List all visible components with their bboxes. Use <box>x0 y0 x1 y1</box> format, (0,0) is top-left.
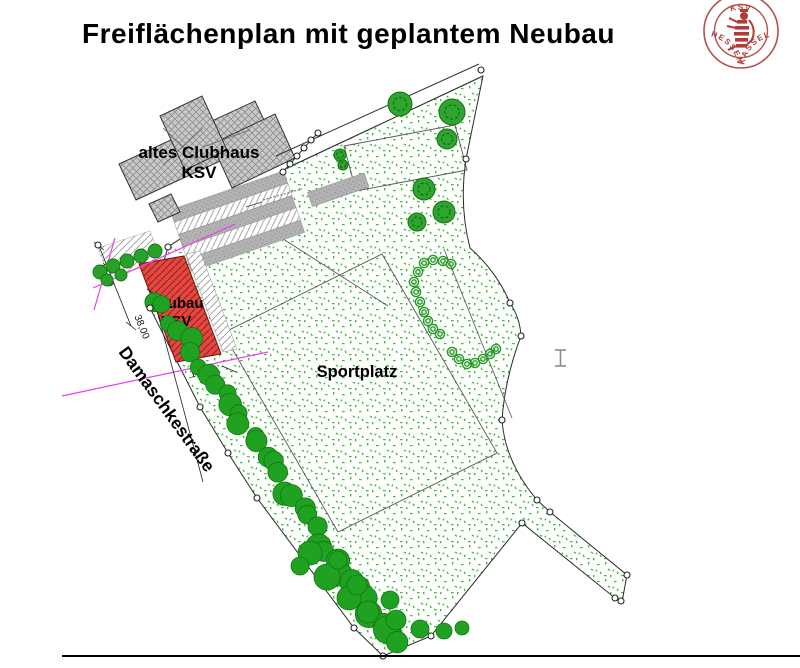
ksv-logo: KSV HESSEN KASSEL <box>704 0 778 68</box>
dimension-38: 38,00 <box>132 313 152 341</box>
site-plan-drawing: Neubau KSV altes Clubhaus KSV <box>0 0 800 668</box>
text-cursor-icon <box>555 350 566 366</box>
sportplatz-label: Sportplatz <box>317 363 398 381</box>
plan-page: Freiflächenplan mit geplantem Neubau <box>0 0 800 668</box>
old-clubhouse-label-1: altes Clubhaus <box>139 143 260 162</box>
old-clubhouse-label-2: KSV <box>182 163 218 182</box>
